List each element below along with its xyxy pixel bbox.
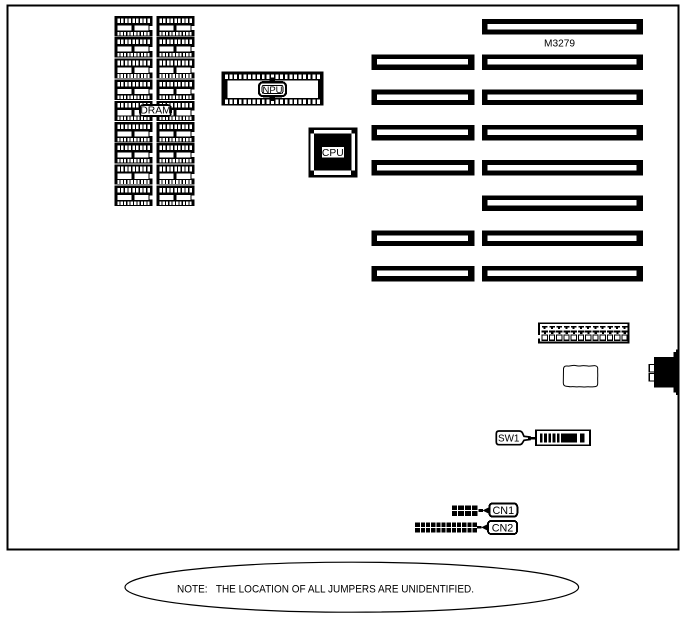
svg-text:CPU: CPU [322,148,344,159]
svg-text:DRAM: DRAM [140,106,170,117]
svg-text:SW1: SW1 [498,433,520,444]
svg-text:NPU: NPU [262,85,282,96]
svg-text:M3279: M3279 [544,39,575,50]
svg-text:CN2: CN2 [492,522,514,534]
svg-text:CN1: CN1 [492,505,514,517]
svg-text:NOTE: THE LOCATION OF ALL JU: NOTE: THE LOCATION OF ALL JUMPERS ARE UN… [177,583,474,595]
